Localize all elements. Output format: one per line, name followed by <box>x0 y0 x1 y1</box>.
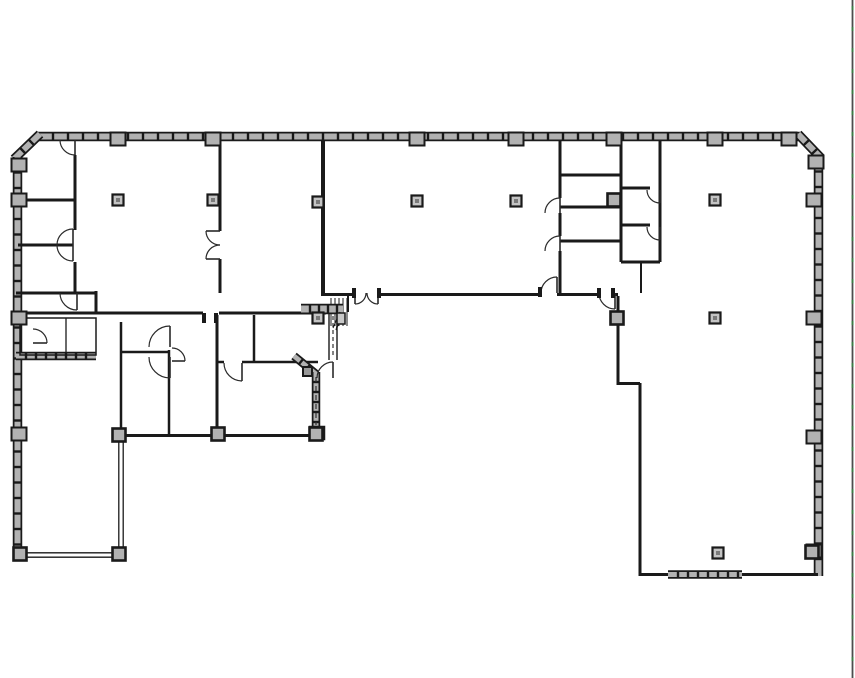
stair-and-detail-layer <box>20 312 345 439</box>
thin-walls-layer <box>16 296 348 557</box>
floor-plan-svg <box>0 0 855 678</box>
floor-plan-canvas <box>0 0 855 678</box>
door-jambs-layer <box>202 287 615 323</box>
columns-layer <box>14 194 819 561</box>
